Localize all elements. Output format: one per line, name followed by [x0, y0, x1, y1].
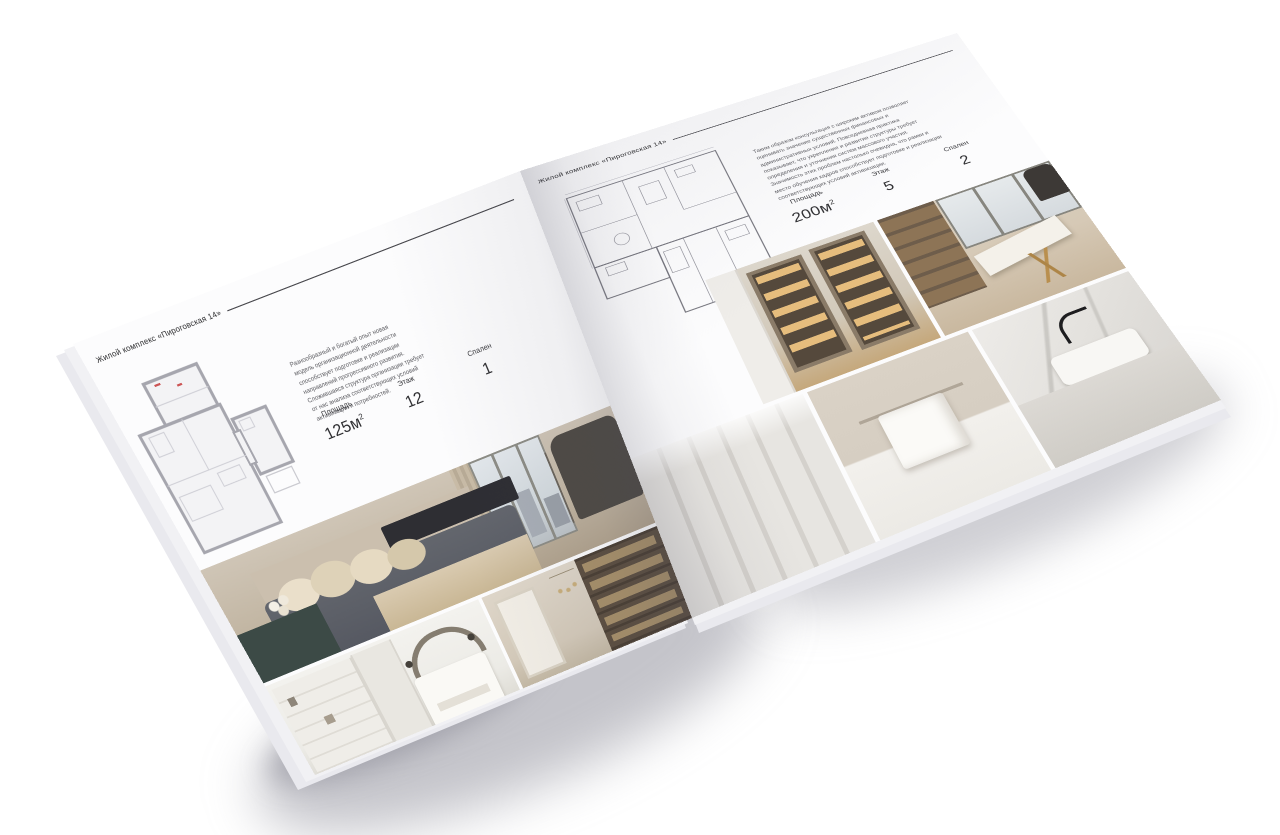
- header-rule: [227, 198, 514, 310]
- page-header: Жилой комплекс «Пироговская 14»: [94, 194, 516, 365]
- spec-bedrooms: Спален 1: [455, 336, 513, 386]
- apartment-description: Таким образом консультация с широким акт…: [752, 96, 950, 203]
- panel-light: [631, 394, 815, 485]
- towel: [877, 392, 971, 470]
- chandelier: [549, 568, 582, 597]
- floorplan-125: [112, 344, 322, 560]
- mockup-scene: { "left_page": { "header": "Жилой компле…: [0, 0, 1280, 835]
